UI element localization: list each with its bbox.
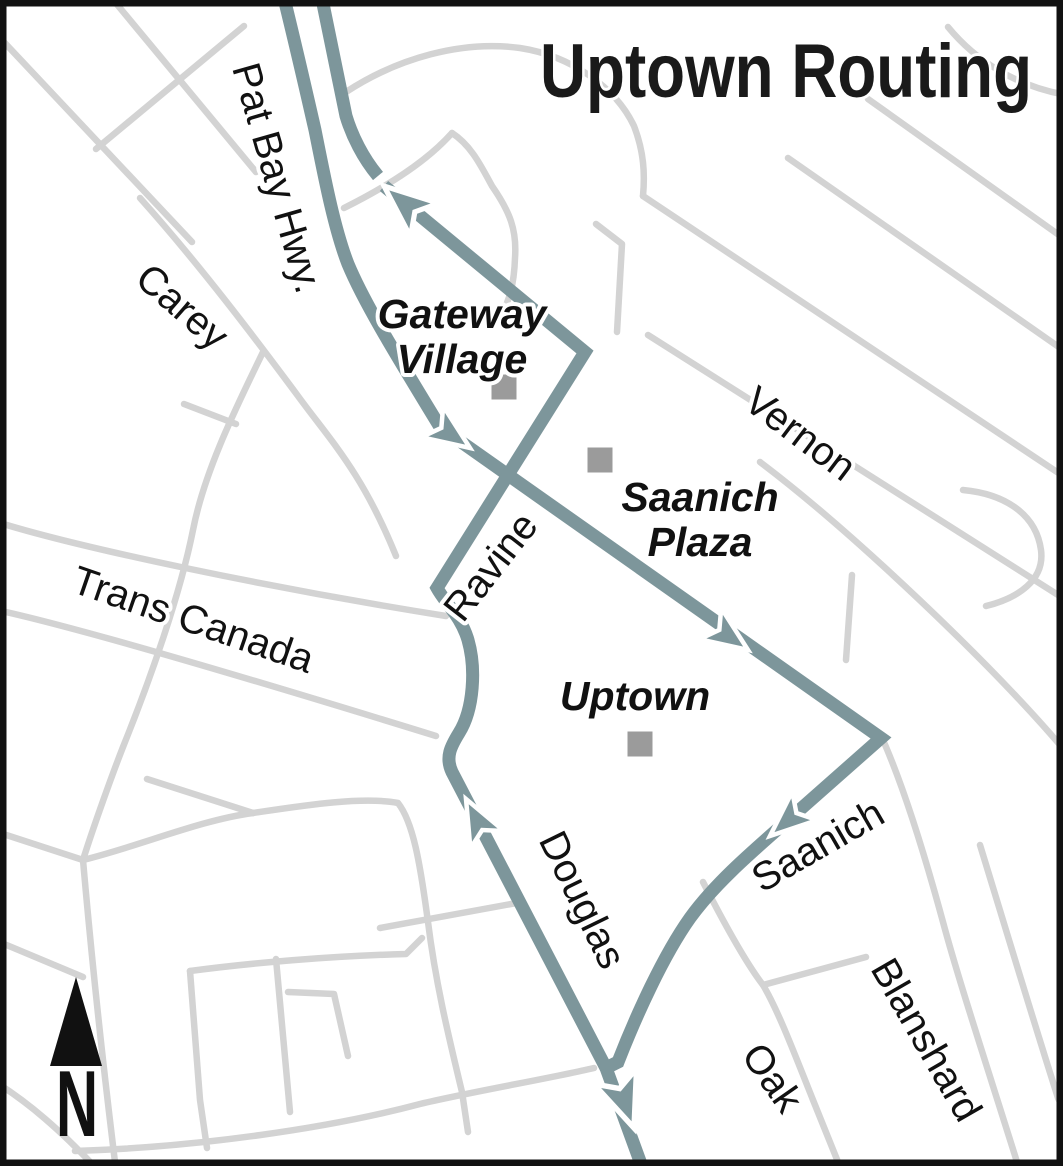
place-label-uptown: Uptown [560, 673, 710, 719]
place-label-saanich-plaza-line2: Plaza [648, 519, 753, 565]
place-label-gateway-village-line2: Village [397, 336, 528, 382]
map-title: Uptown Routing [540, 29, 1032, 114]
routing-map: Pat Bay Hwy. Carey Trans Canada Vernon R… [0, 0, 1063, 1166]
landmark-square-marker [588, 448, 613, 473]
place-label-saanich-plaza-line1: Saanich [621, 474, 778, 520]
place-label-gateway-village-line1: Gateway [378, 291, 549, 337]
north-label: N [56, 1051, 98, 1157]
landmark-square-marker [628, 732, 653, 757]
